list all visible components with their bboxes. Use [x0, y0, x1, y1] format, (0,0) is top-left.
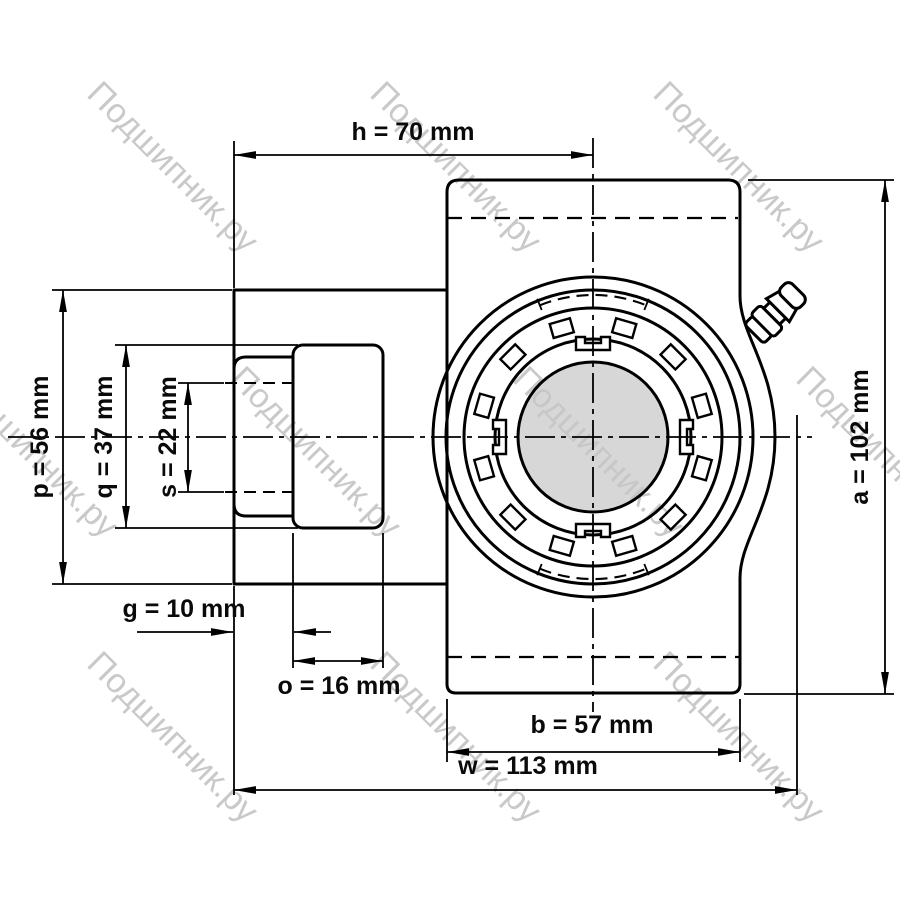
bearing-unit-drawing: Подшипник.ру Подшипник.ру Подшипник.ру П…: [0, 0, 900, 900]
watermark-layer: Подшипник.ру Подшипник.ру Подшипник.ру П…: [0, 74, 900, 830]
dimension-o: o = 16 mm: [278, 533, 401, 700]
grease-fitting: [743, 278, 810, 345]
watermark-text: Подшипник.ру: [363, 74, 549, 260]
technical-drawing-page: Подшипник.ру Подшипник.ру Подшипник.ру П…: [0, 0, 900, 900]
cam-tab: [612, 536, 636, 556]
dimension-g: g = 10 mm: [123, 533, 331, 668]
cam-tab: [550, 318, 574, 338]
dim-label-s: s = 22 mm: [154, 376, 182, 498]
dim-label-h: h = 70 mm: [352, 118, 475, 146]
cam-tab: [474, 394, 494, 418]
cam-tab: [692, 394, 712, 418]
cam-tab: [612, 318, 636, 338]
dim-label-g: g = 10 mm: [123, 595, 246, 623]
dim-label-q: q = 37 mm: [90, 376, 118, 499]
dim-label-o: o = 16 mm: [278, 672, 401, 700]
dim-label-a: a = 102 mm: [846, 369, 874, 505]
cam-tab: [500, 344, 525, 369]
dim-label-p: p = 56 mm: [26, 376, 54, 499]
cam-tab: [550, 536, 574, 556]
dim-label-b: b = 57 mm: [531, 711, 654, 739]
cam-tab: [692, 456, 712, 480]
dim-label-w: w = 113 mm: [457, 752, 598, 780]
watermark-text: Подшипник.ру: [80, 74, 266, 260]
cam-tab: [500, 505, 525, 530]
watermark-text: Подшипник.ру: [80, 644, 266, 830]
watermark-text: Подшипник.ру: [789, 359, 900, 545]
cam-tab: [661, 344, 686, 369]
cam-tab: [474, 456, 494, 480]
